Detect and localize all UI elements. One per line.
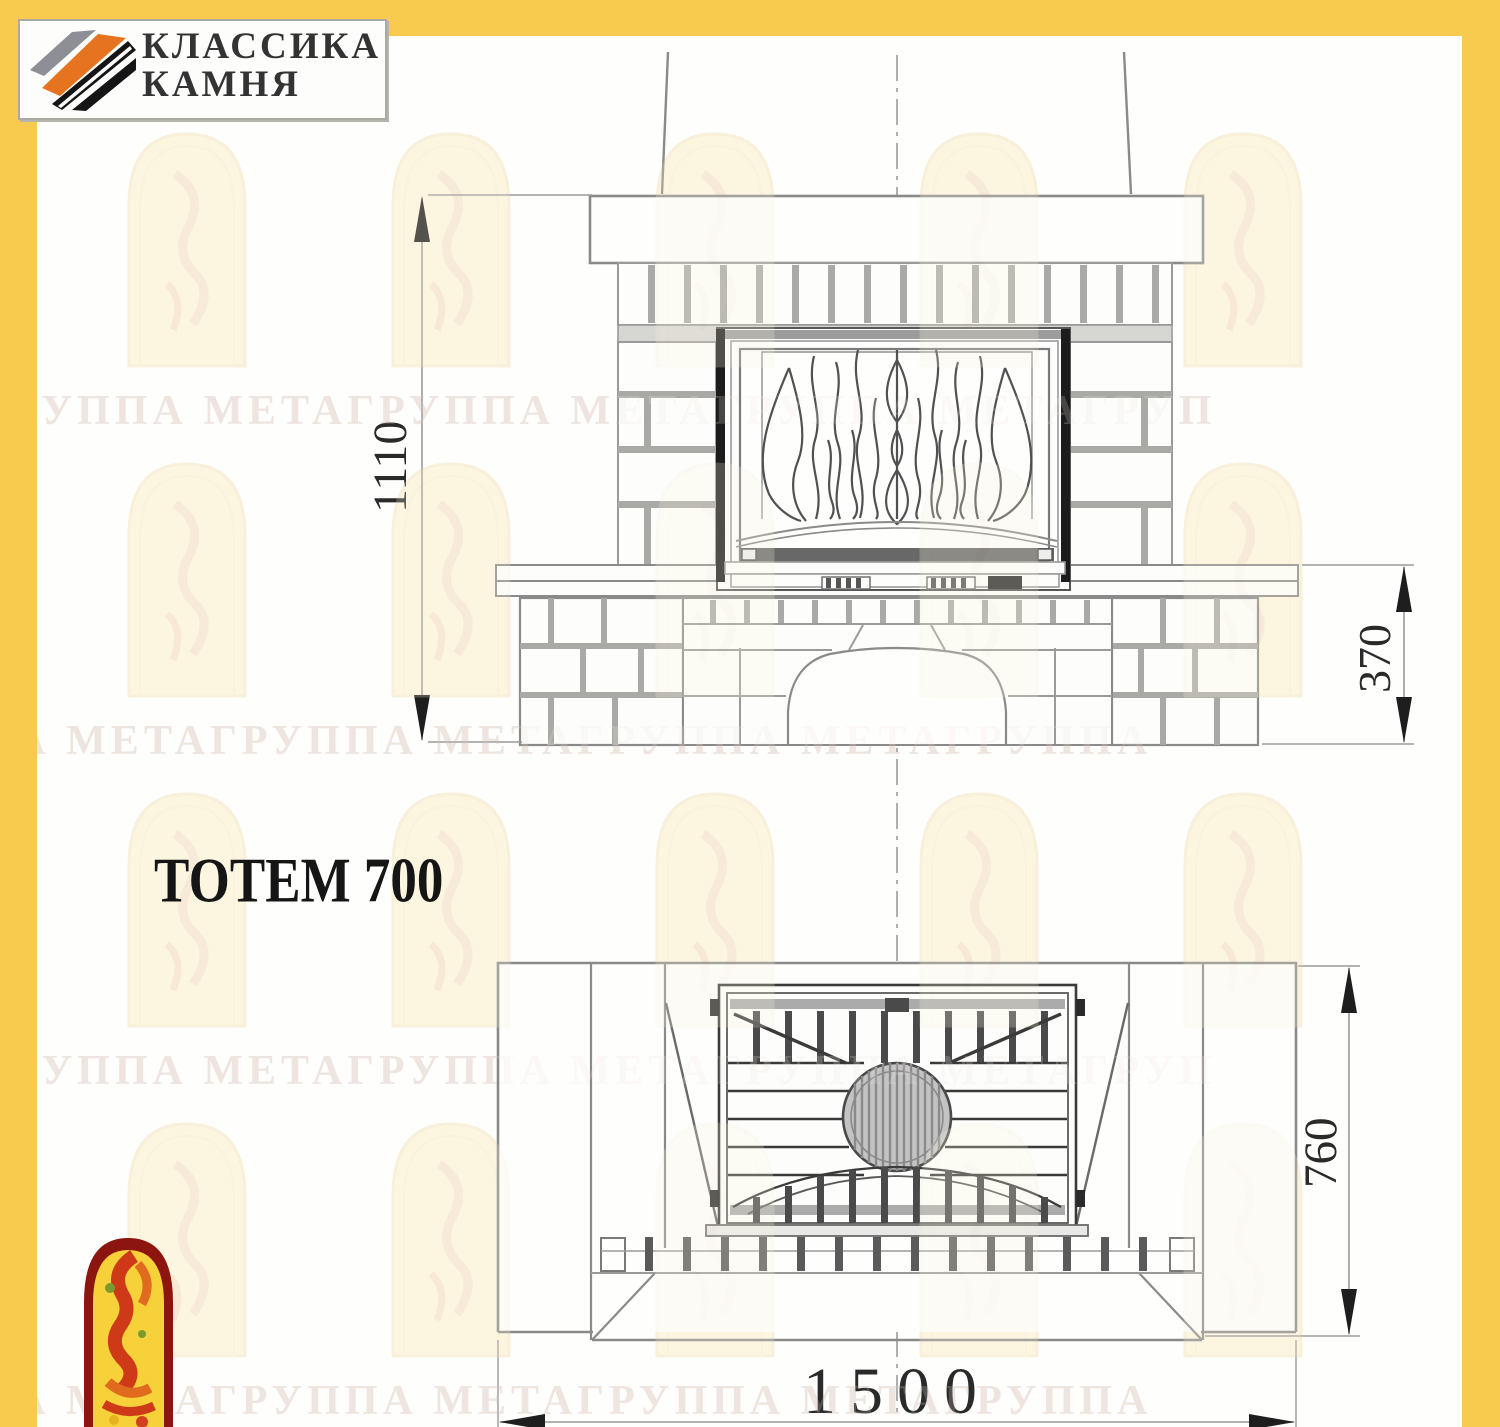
svg-text:1500: 1500	[803, 1355, 991, 1427]
svg-text:370: 370	[1349, 624, 1400, 693]
svg-text:760: 760	[1295, 1118, 1347, 1189]
svg-text:1110: 1110	[364, 421, 417, 513]
